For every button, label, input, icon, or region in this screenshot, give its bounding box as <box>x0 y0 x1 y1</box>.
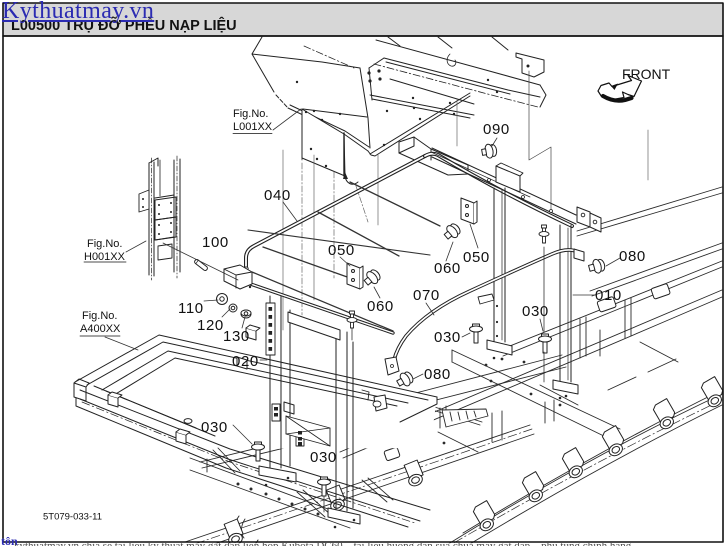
svg-text:040: 040 <box>264 187 291 204</box>
svg-text:H001XX: H001XX <box>84 251 126 263</box>
svg-text:080: 080 <box>619 248 646 265</box>
svg-text:030: 030 <box>522 303 549 320</box>
svg-text:130: 130 <box>223 328 250 345</box>
svg-text:080: 080 <box>424 366 451 383</box>
svg-text:Fig.No.: Fig.No. <box>82 310 117 322</box>
svg-text:070: 070 <box>413 287 440 304</box>
svg-text:Fig.No.: Fig.No. <box>87 238 122 250</box>
svg-text:L001XX: L001XX <box>233 121 273 133</box>
svg-text:120: 120 <box>197 317 224 334</box>
svg-text:030: 030 <box>201 419 228 436</box>
svg-text:FRONT: FRONT <box>622 66 671 82</box>
svg-text:110: 110 <box>178 300 204 317</box>
svg-text:050: 050 <box>328 242 355 259</box>
svg-text:060: 060 <box>434 260 461 277</box>
svg-text:090: 090 <box>483 121 510 138</box>
svg-text:010: 010 <box>595 287 622 304</box>
svg-text:030: 030 <box>434 329 461 346</box>
svg-text:Fig.No.: Fig.No. <box>233 108 268 120</box>
svg-text:5T079-033-11: 5T079-033-11 <box>43 512 102 523</box>
svg-text:060: 060 <box>367 298 394 315</box>
svg-text:A400XX: A400XX <box>80 323 121 335</box>
svg-text:030: 030 <box>310 449 337 466</box>
svg-text:100: 100 <box>202 234 229 251</box>
svg-text:020: 020 <box>232 353 259 370</box>
svg-text:050: 050 <box>463 249 490 266</box>
